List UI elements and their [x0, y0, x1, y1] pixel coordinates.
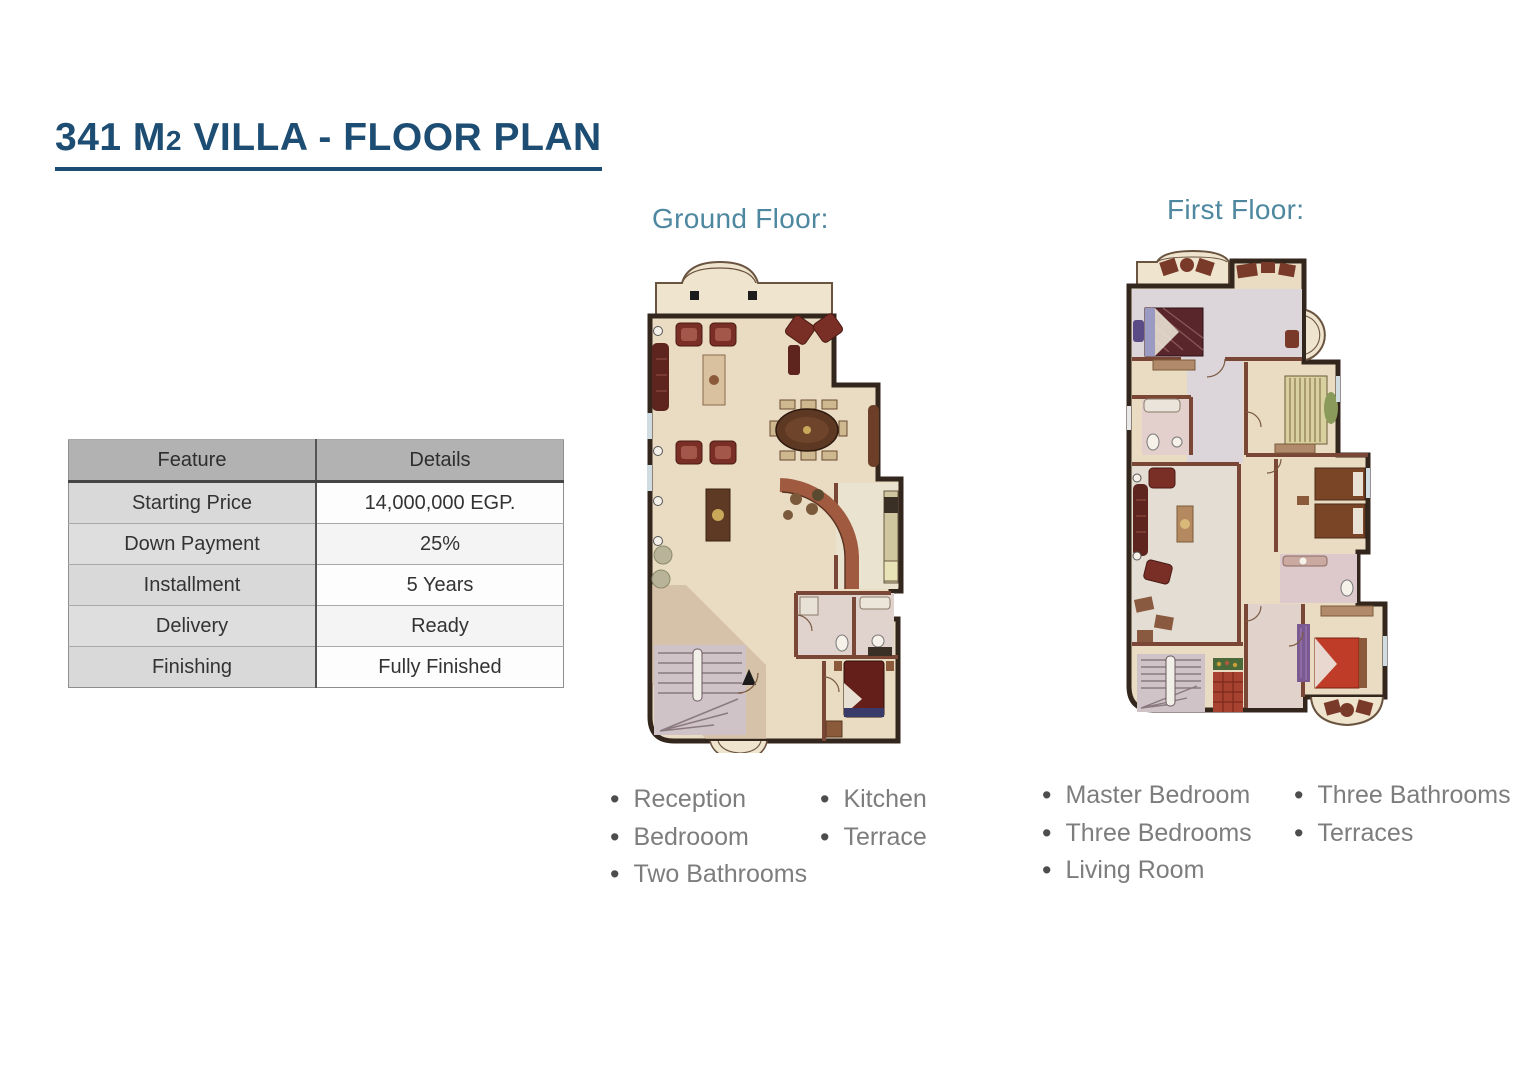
- kitchen-stool: [806, 503, 818, 515]
- ground-floor-plan: [646, 253, 906, 753]
- list-item: Master Bedroom: [1042, 777, 1252, 815]
- bathroom-floor: [1246, 604, 1303, 708]
- list-item: Three Bathrooms: [1294, 777, 1511, 815]
- porch-column: [748, 291, 757, 300]
- kitchen-stool: [790, 493, 802, 505]
- table-row: Down Payment25%: [69, 524, 564, 565]
- terrace-table: [1340, 703, 1354, 717]
- list-item: Two Bathrooms: [610, 856, 807, 894]
- dining-niche: [868, 405, 879, 467]
- first-floor-plan: [1125, 246, 1391, 734]
- bedroom-chair: [1133, 320, 1144, 342]
- table-row: DeliveryReady: [69, 606, 564, 647]
- table-row: FinishingFully Finished: [69, 647, 564, 688]
- table-row: Starting Price14,000,000 EGP.: [69, 482, 564, 524]
- ground-floor-label: Ground Floor:: [652, 203, 829, 235]
- dresser: [1153, 360, 1195, 370]
- entrance-porch-arch: [656, 262, 832, 315]
- staircase: [654, 645, 746, 735]
- first-floor-label: First Floor:: [1167, 194, 1304, 226]
- red-tile-patch: [1213, 658, 1243, 712]
- page-title: 341 M2 VILLA - FLOOR PLAN: [55, 116, 602, 171]
- console-decor: [709, 375, 719, 385]
- floor-plan-page: 341 M2 VILLA - FLOOR PLAN Feature Detail…: [0, 0, 1529, 1080]
- ground-floor-features-col1: Reception Bedrooom Two Bathrooms: [610, 781, 807, 894]
- staircase: [1137, 654, 1205, 712]
- details-header: Details: [316, 440, 564, 482]
- list-item: Kitchen: [820, 781, 927, 819]
- kitchen-stool: [812, 489, 824, 501]
- terrace-table: [1180, 258, 1194, 272]
- dining-table: [770, 400, 847, 460]
- plant: [654, 546, 672, 564]
- list-item: Reception: [610, 781, 807, 819]
- feature-header: Feature: [69, 440, 317, 482]
- cabinet-decor: [712, 509, 724, 521]
- window: [1366, 468, 1370, 498]
- window: [1383, 636, 1387, 666]
- kitchen-stool: [783, 510, 793, 520]
- figure: [1324, 392, 1338, 424]
- window: [647, 465, 652, 491]
- window: [1336, 376, 1340, 402]
- upper-terrace: [1137, 251, 1229, 286]
- table-row: Installment5 Years: [69, 565, 564, 606]
- ground-floor-features-col2: Kitchen Terrace: [820, 781, 927, 856]
- master-bed: [1145, 308, 1203, 356]
- table-header-row: Feature Details: [69, 440, 564, 482]
- plant: [652, 570, 670, 588]
- list-item: Terrace: [820, 819, 927, 857]
- list-item: Bedrooom: [610, 819, 807, 857]
- list-item: Three Bedrooms: [1042, 815, 1252, 853]
- pricing-table: Feature Details Starting Price14,000,000…: [68, 439, 564, 688]
- lower-terrace: [1311, 697, 1383, 725]
- first-floor-features-col1: Master Bedroom Three Bedrooms Living Roo…: [1042, 777, 1252, 890]
- list-item: Terraces: [1294, 815, 1511, 853]
- list-item: Living Room: [1042, 852, 1252, 890]
- first-floor-features-col2: Three Bathrooms Terraces: [1294, 777, 1511, 852]
- window: [1127, 406, 1131, 430]
- porch-column: [690, 291, 699, 300]
- window: [647, 413, 652, 439]
